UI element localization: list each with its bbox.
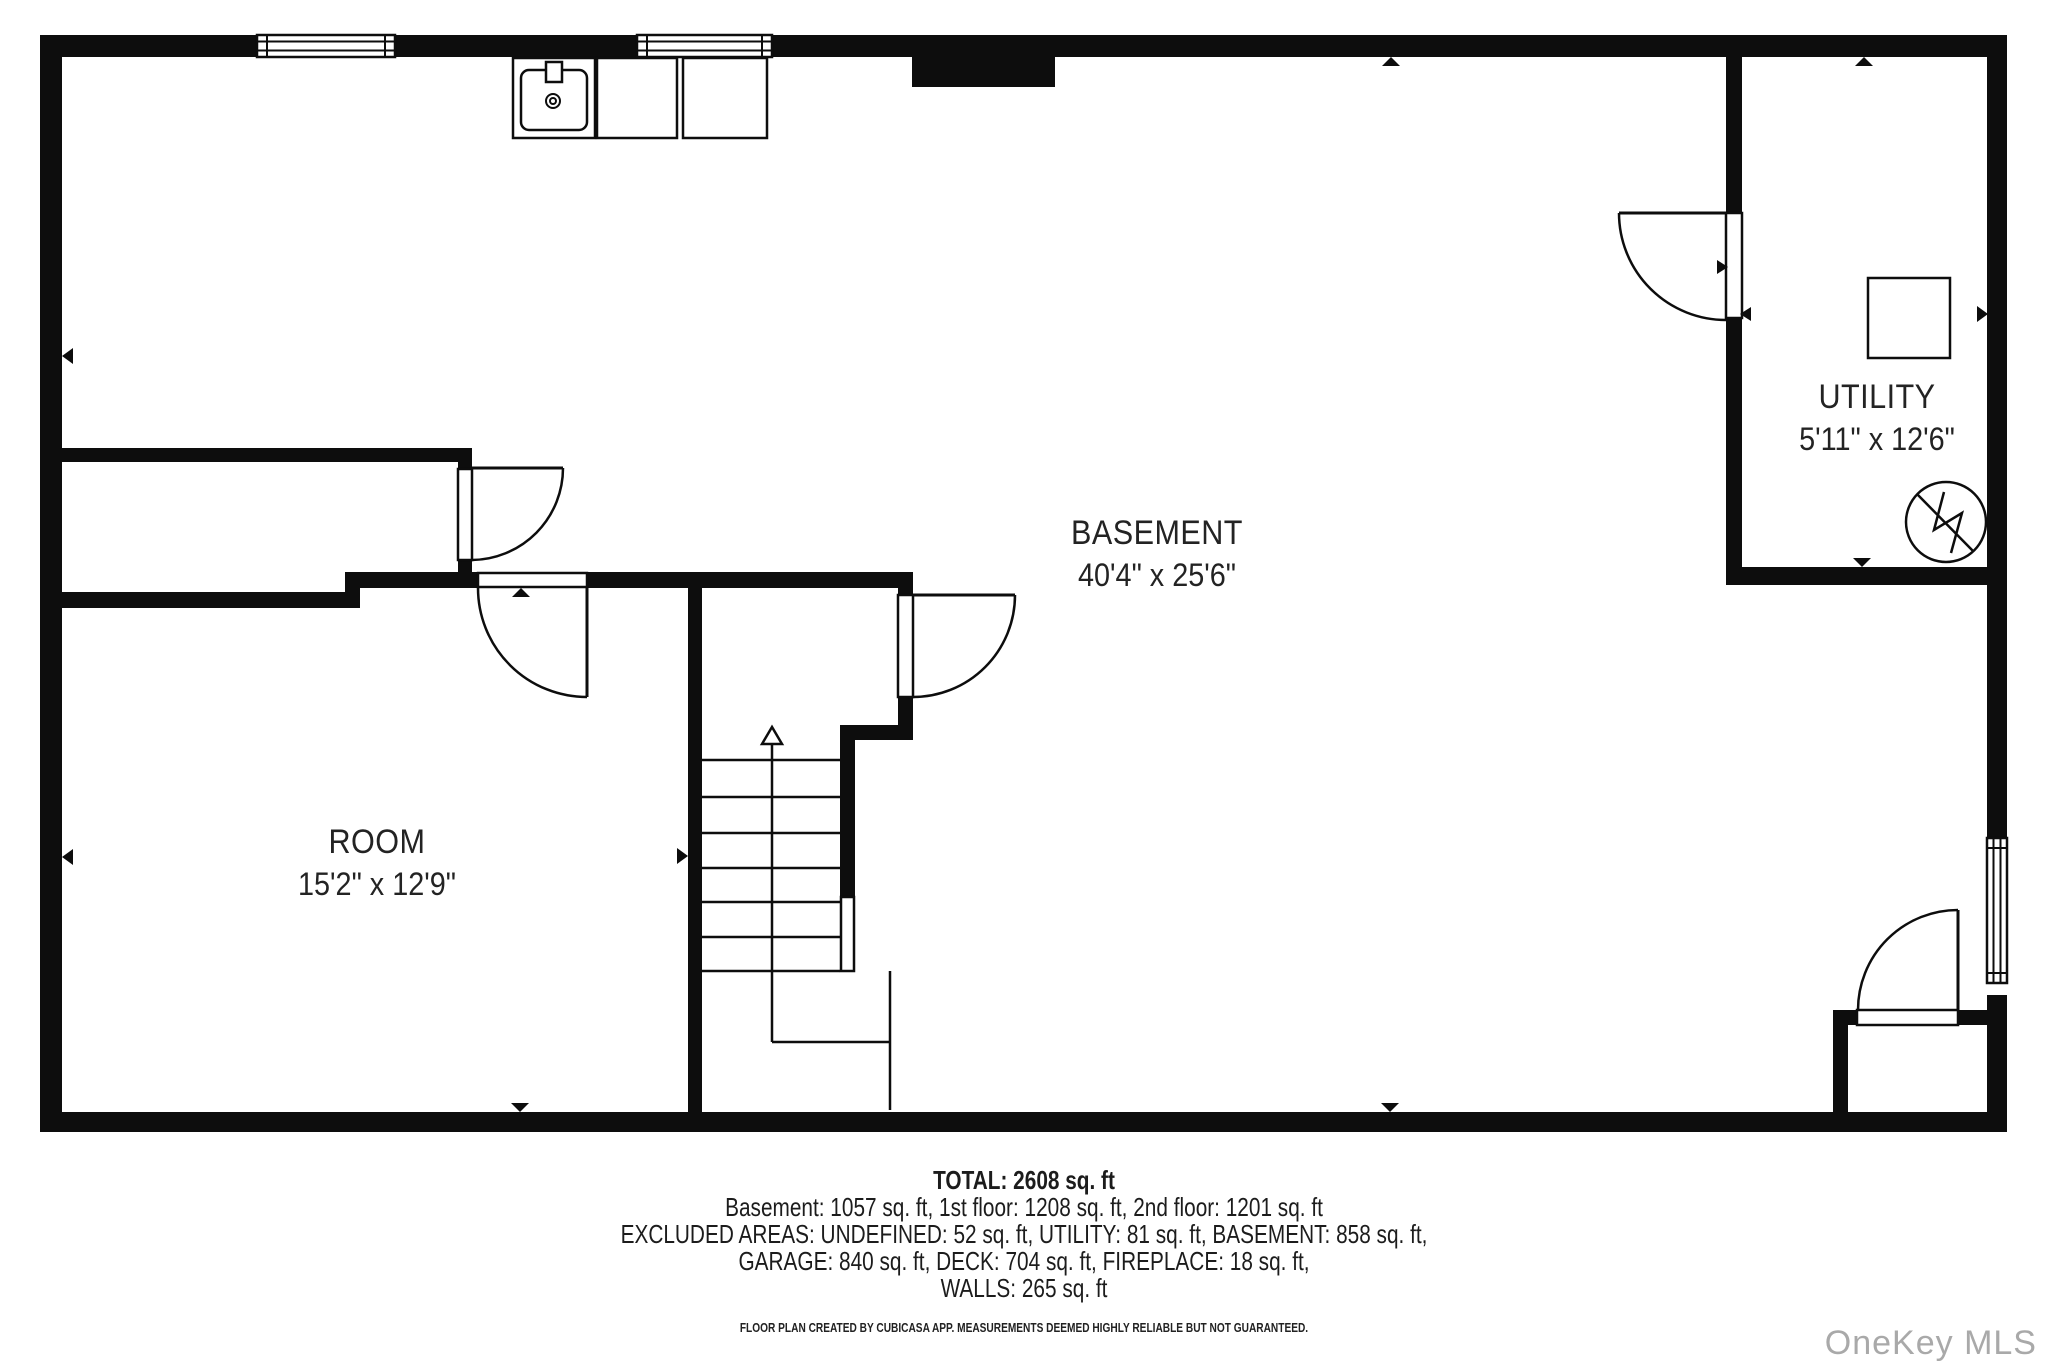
room-label-basement: BASEMENT40'4" x 25'6" <box>917 512 1397 597</box>
wall-marker <box>62 849 73 865</box>
wall-marker <box>1381 1103 1399 1112</box>
floor-areas-text: Basement: 1057 sq. ft, 1st floor: 1208 s… <box>205 1194 1843 1221</box>
wall-marker <box>1855 57 1873 66</box>
wall-segment <box>898 572 913 595</box>
room-dimensions: 40'4" x 25'6" <box>941 554 1373 597</box>
wall-marker <box>1382 57 1400 66</box>
wall-segment <box>62 592 360 608</box>
wall-marker <box>1977 306 1988 322</box>
door-opening <box>458 469 472 560</box>
kitchen-appliance <box>597 58 677 138</box>
wall-marker <box>62 348 73 364</box>
disclaimer-text: FLOOR PLAN CREATED BY CUBICASA APP. MEAS… <box>225 1321 1822 1335</box>
wall-segment <box>840 740 855 897</box>
wall-segment <box>1958 1010 1987 1025</box>
walls-area-text: WALLS: 265 sq. ft <box>205 1275 1843 1302</box>
door-swing-arc <box>1858 910 1958 1010</box>
kitchen-appliance <box>683 58 767 138</box>
door-swing-arc <box>478 588 587 697</box>
wall-segment <box>345 572 360 608</box>
wall-marker <box>677 848 688 864</box>
wall-marker <box>1853 558 1871 567</box>
room-dimensions: 15'2" x 12'9" <box>161 863 593 906</box>
wall-segment <box>1726 57 1742 213</box>
wall-segment <box>62 448 472 462</box>
door-opening <box>1857 1010 1958 1025</box>
wall-segment <box>1833 1010 1857 1025</box>
sink-faucet <box>546 62 562 82</box>
wall-marker <box>512 588 530 597</box>
room-label-utility: UTILITY5'11" x 12'6" <box>1637 376 2048 461</box>
wall-segment <box>688 588 702 1112</box>
stair-up-arrow <box>762 727 782 744</box>
door-swing-arc <box>472 468 563 560</box>
wall-segment <box>360 572 478 588</box>
wall-marker <box>511 1103 529 1112</box>
sink-drain <box>550 98 556 104</box>
door-opening <box>1726 213 1742 318</box>
door-swing-arc <box>913 595 1015 697</box>
room-name: ROOM <box>161 821 593 863</box>
wall-segment <box>587 572 900 588</box>
window <box>1987 838 2007 983</box>
wall-segment <box>40 1112 2007 1132</box>
area-summary: TOTAL: 2608 sq. ft Basement: 1057 sq. ft… <box>0 1167 2048 1335</box>
excluded-areas-text-2: GARAGE: 840 sq. ft, DECK: 704 sq. ft, FI… <box>205 1248 1843 1275</box>
wall-segment <box>912 57 1055 87</box>
floorplan-drawing <box>0 0 2048 1365</box>
door-swing-arc <box>1619 213 1726 320</box>
total-area-text: TOTAL: 2608 sq. ft <box>205 1167 1843 1194</box>
wall-segment <box>458 560 472 572</box>
door-opening <box>478 573 587 587</box>
door-opening <box>841 897 854 971</box>
floorplan-page: BASEMENT40'4" x 25'6"UTILITY5'11" x 12'6… <box>0 0 2048 1365</box>
room-label-room: ROOM15'2" x 12'9" <box>137 821 617 906</box>
wall-segment <box>1987 995 2007 1132</box>
wall-segment <box>1726 567 2007 585</box>
wall-segment <box>40 35 62 1132</box>
room-name: BASEMENT <box>941 512 1373 554</box>
window <box>637 35 772 57</box>
excluded-areas-text-1: EXCLUDED AREAS: UNDEFINED: 52 sq. ft, UT… <box>205 1221 1843 1248</box>
onekey-mls-watermark: OneKey MLS <box>1825 1324 2037 1363</box>
wall-segment <box>1833 1010 1848 1112</box>
washer-box <box>1868 278 1950 358</box>
room-dimensions: 5'11" x 12'6" <box>1661 418 2048 461</box>
window <box>257 35 395 57</box>
room-name: UTILITY <box>1661 376 2048 418</box>
door-opening <box>898 595 913 697</box>
wall-segment <box>840 725 913 740</box>
wall-segment <box>458 448 472 469</box>
